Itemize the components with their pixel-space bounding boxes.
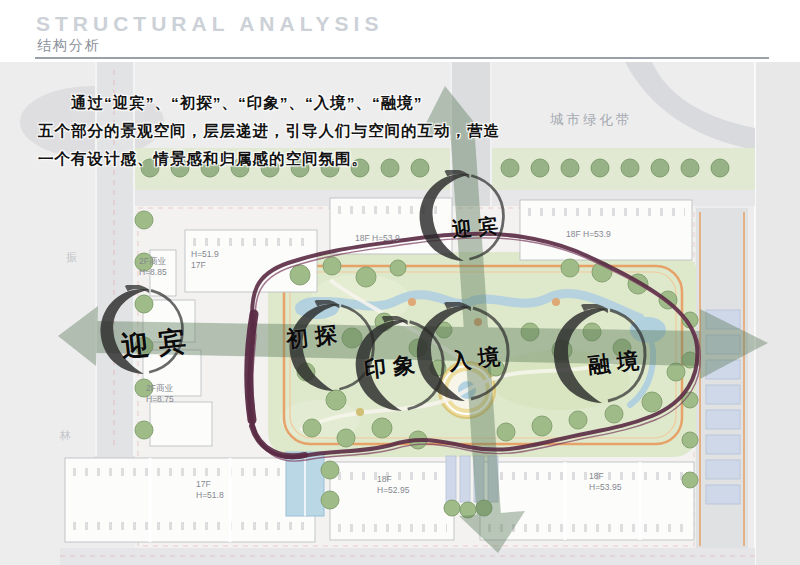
description-line: 通过“迎宾”、“初探”、“印象”、“入境”、“融境” [38,93,423,114]
green-belt-label: 城市绿化带 [550,111,633,129]
street-name-fragment: 林 [60,428,71,443]
zone-label: 初探 [285,319,346,355]
building-label: 18F H=53.9 [566,229,611,240]
building-label: 2F商业 H=8.75 [146,383,174,404]
zone-label: 迎宾 [119,321,197,367]
zone-label: 入境 [448,341,509,377]
description-line: 一个有设计感、情景感和归属感的空间氛围。 [38,149,368,170]
building-label: H=51.9 17F [191,249,219,270]
building-label: 18F H=53.95 [589,471,621,492]
building-label: 18F H=52.95 [377,474,409,495]
description-line: 五个部分的景观空间，层层递进，引导人们与空间的互动，营造 [38,121,500,142]
building-label: 17F H=51.8 [196,479,224,500]
zone-yingbin-left: 迎宾 [97,285,187,375]
zone-rujing: 入境 [413,302,513,402]
building-label: 18F H=53.9 [355,233,400,244]
zone-label: 迎宾 [451,211,506,243]
building-label: 2F商业 H=8.85 [139,256,167,277]
zone-label: 融境 [587,345,648,381]
zone-rongjing: 融境 [550,304,650,404]
street-name-fragment: 振 [66,250,77,265]
analysis-slide: STRUCTURAL ANALYSIS 结构分析 [0,0,800,565]
zone-yingbin-top: 迎宾 [416,170,508,262]
